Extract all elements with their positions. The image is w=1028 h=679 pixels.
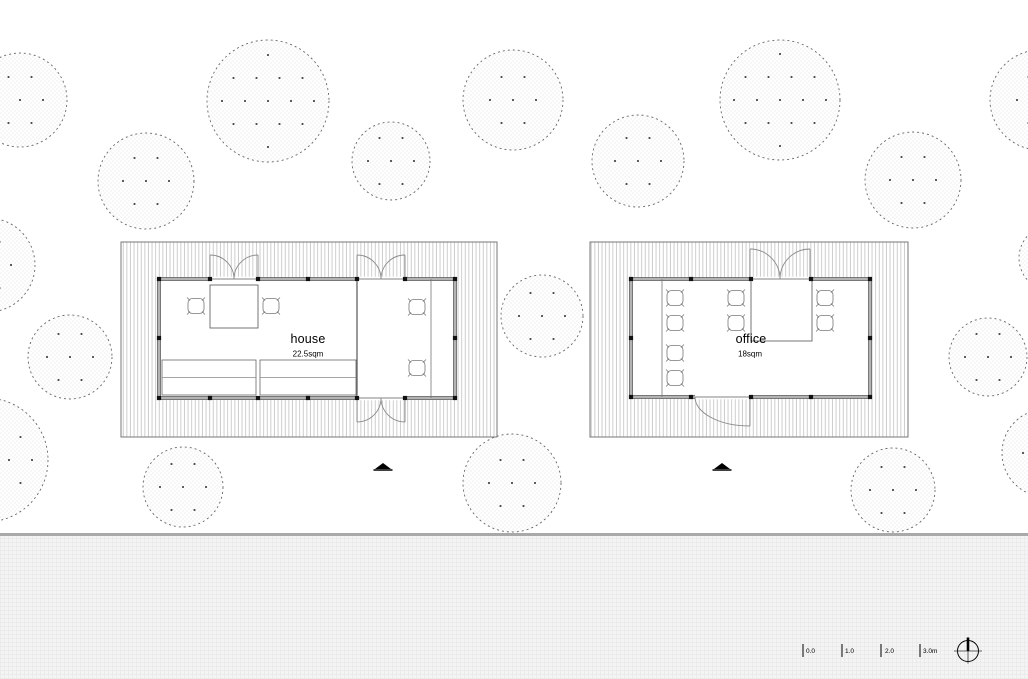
tree bbox=[0, 218, 35, 312]
tree bbox=[501, 275, 583, 357]
tree bbox=[207, 40, 329, 162]
tree bbox=[720, 40, 840, 160]
tree bbox=[592, 115, 684, 207]
house-entrance-marker bbox=[375, 463, 391, 469]
scale-label-2: 2.0 bbox=[885, 648, 894, 655]
tree bbox=[0, 53, 67, 147]
house-table bbox=[210, 285, 258, 328]
house-area-label: 22.5sqm bbox=[293, 350, 324, 359]
site-plan-canvas: house 22.5sqm office 18sqm 0.0 1.0 2.0 3… bbox=[0, 0, 1028, 679]
tree bbox=[949, 318, 1027, 396]
tree bbox=[143, 447, 223, 527]
house-label: house bbox=[290, 332, 325, 346]
tree bbox=[98, 133, 194, 229]
tree bbox=[865, 132, 961, 228]
tree bbox=[463, 434, 561, 532]
office-area-label: 18sqm bbox=[738, 350, 762, 359]
scale-label-1: 1.0 bbox=[845, 648, 854, 655]
tree bbox=[990, 50, 1028, 150]
tree bbox=[1019, 225, 1028, 291]
scale-label-3: 3.0m bbox=[923, 648, 937, 655]
scale-label-0: 0.0 bbox=[806, 648, 815, 655]
tree bbox=[0, 398, 48, 522]
tree bbox=[352, 122, 430, 200]
plan-drawing bbox=[0, 0, 1028, 679]
tree bbox=[851, 448, 935, 532]
tree bbox=[1002, 409, 1028, 497]
tree bbox=[28, 315, 112, 399]
scale-bar bbox=[803, 644, 920, 657]
north-symbol bbox=[954, 638, 982, 664]
office-entrance-marker bbox=[714, 463, 730, 469]
tree bbox=[463, 50, 563, 150]
office-label: office bbox=[736, 332, 767, 346]
